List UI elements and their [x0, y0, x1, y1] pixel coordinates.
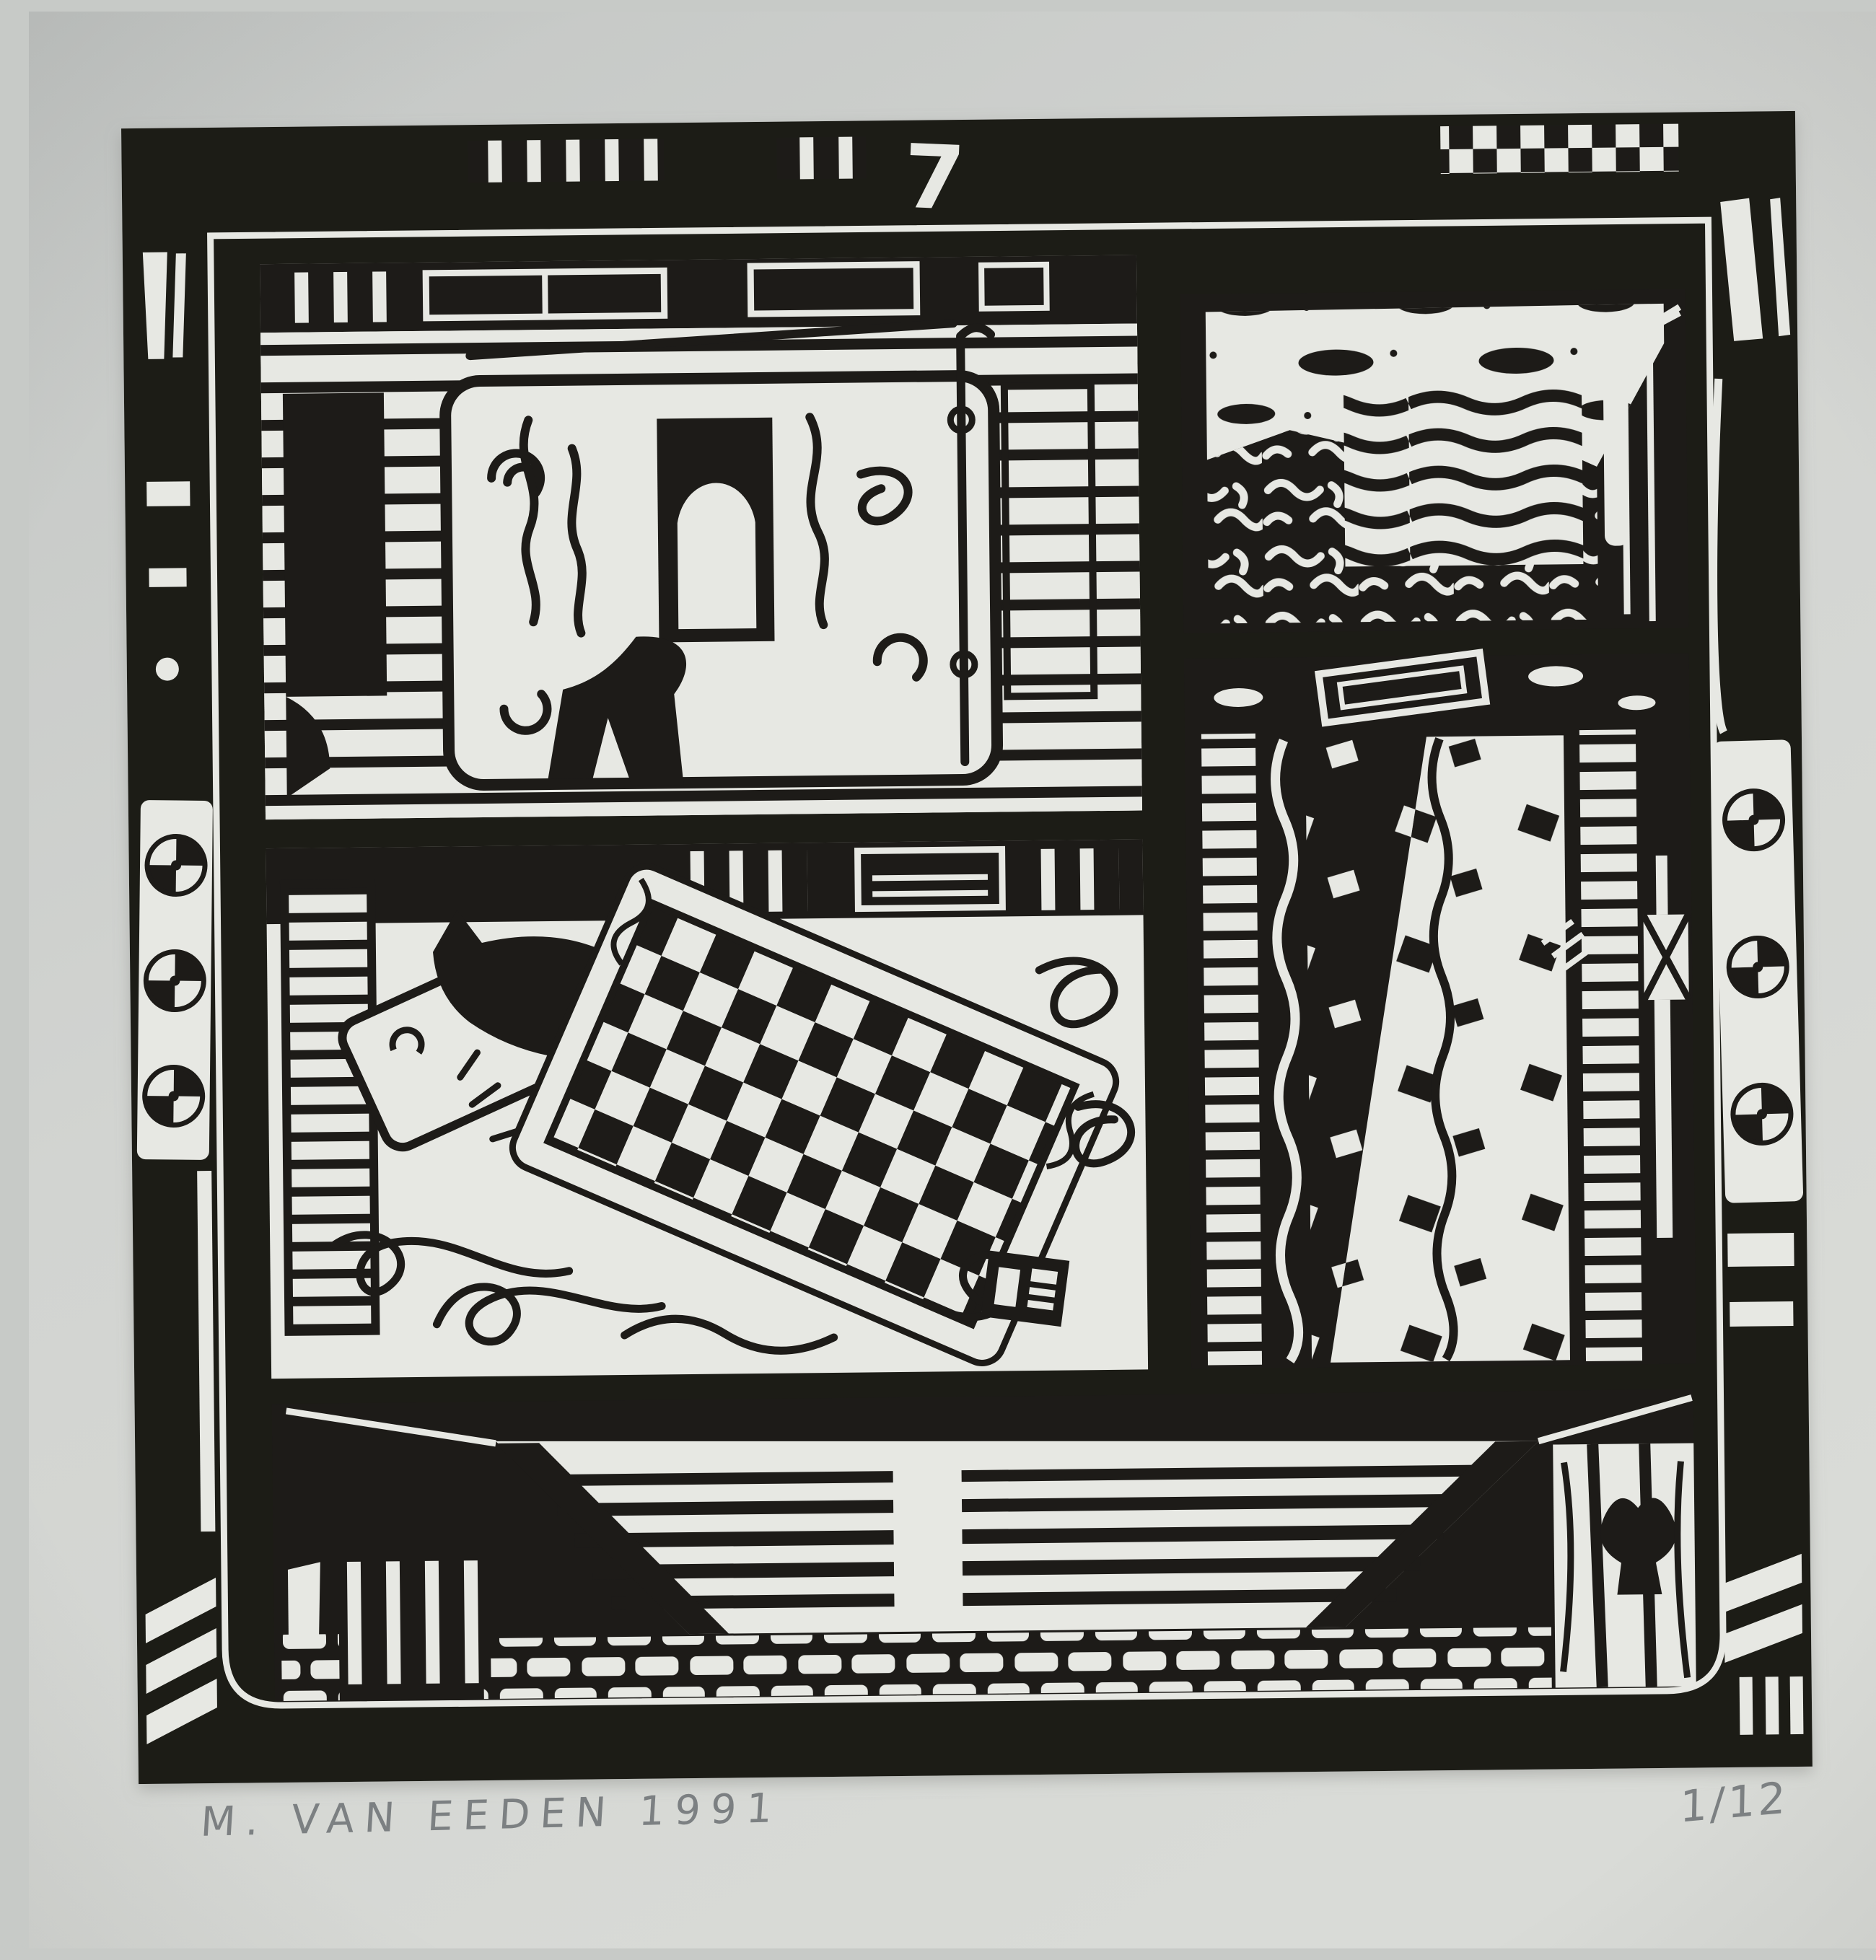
left-screw-plate [137, 800, 213, 1160]
bedside-radio [981, 1250, 1069, 1327]
linocut-print-photo: 7 [29, 12, 1876, 1948]
panel-underpass [272, 1389, 1696, 1705]
brick-wall [483, 1627, 1552, 1699]
panel-bedroom [1180, 289, 1689, 633]
panel-abstract-corridor [1184, 651, 1696, 1373]
panel-living-room [260, 255, 1142, 819]
right-screw-plate [1713, 739, 1804, 1203]
right-pillars [1553, 1443, 1696, 1687]
panel-bed [266, 839, 1148, 1379]
edition-number: 1/12 [1680, 1772, 1789, 1833]
print-block: 7 [121, 111, 1813, 1784]
striped-mattress [1344, 380, 1584, 566]
plate-number: 7 [901, 126, 967, 230]
print-artwork-svg: 7 [29, 12, 1876, 1948]
